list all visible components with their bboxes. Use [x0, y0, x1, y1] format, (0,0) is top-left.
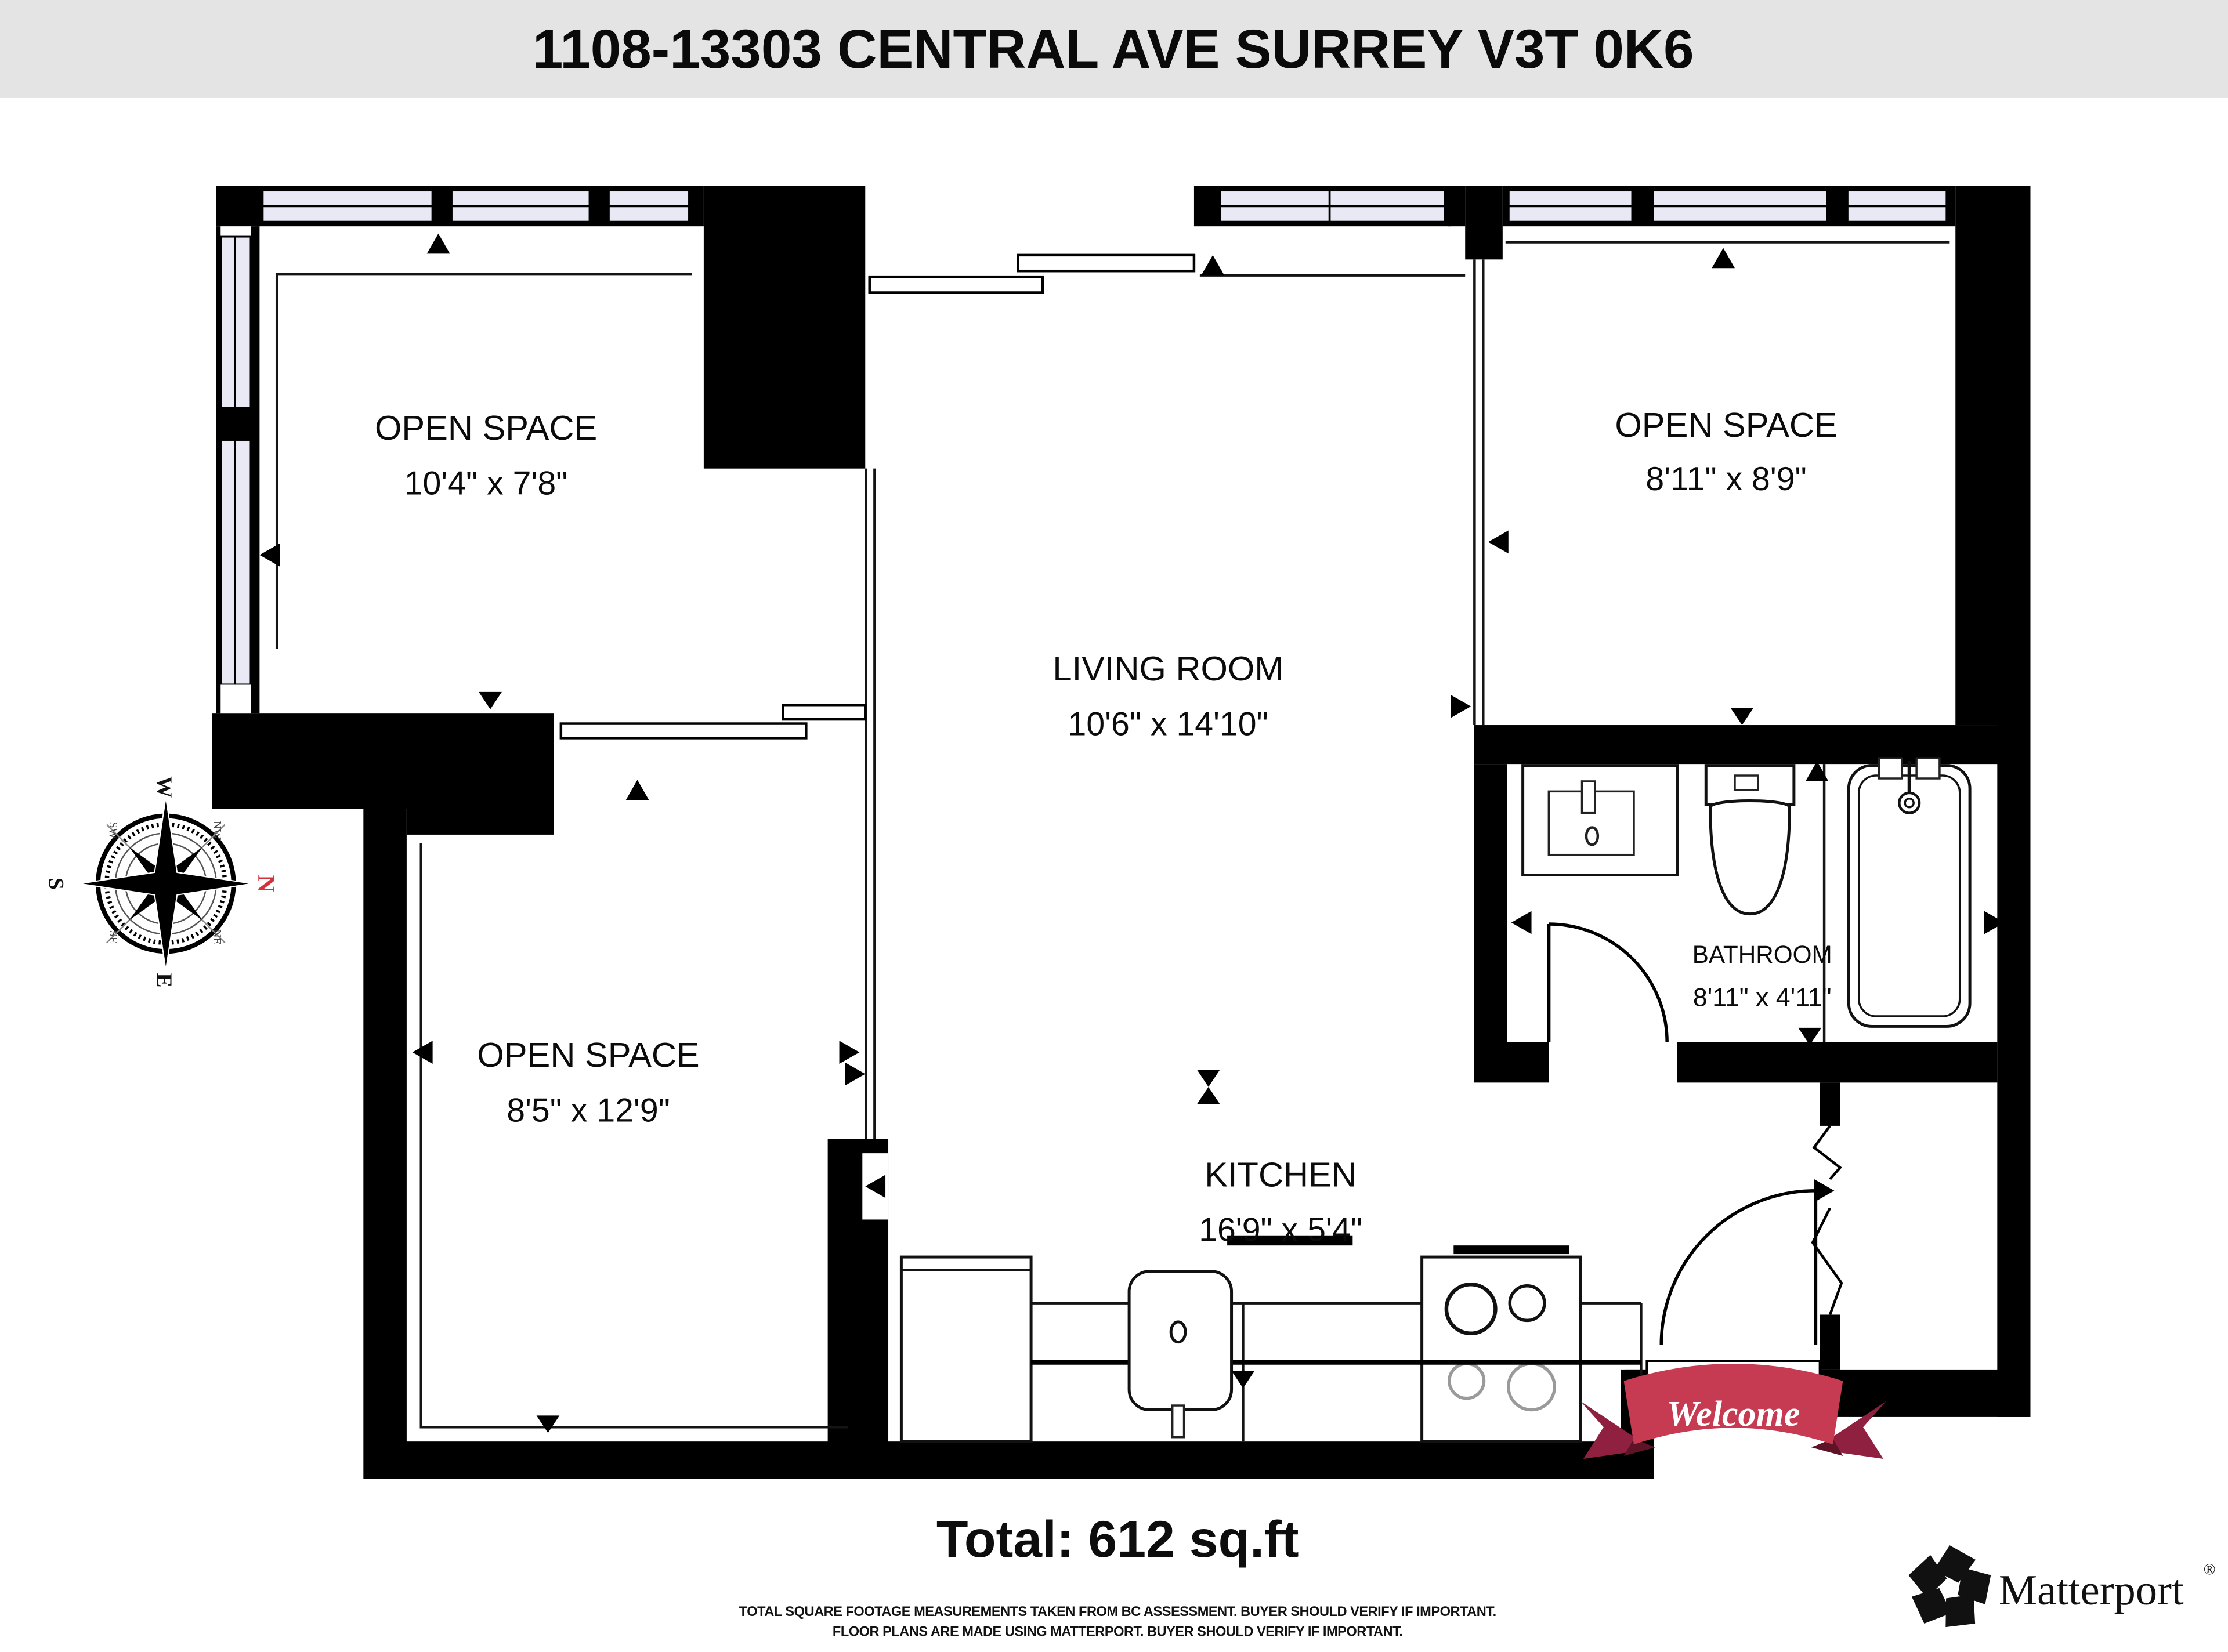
bathtub — [1849, 758, 1970, 1026]
kitchen-sink — [1129, 1271, 1231, 1437]
matterport-wordmark: Matterport — [1999, 1567, 2184, 1614]
bathroom-door — [1549, 924, 1667, 1042]
compass-south-label: S — [44, 878, 68, 890]
wall-break-symbol — [1814, 1126, 1840, 1179]
bathroom-vanity-sink — [1523, 766, 1677, 875]
registered-trademark-symbol: ® — [2204, 1560, 2216, 1578]
disclaimer-line-2: FLOOR PLANS ARE MADE USING MATTERPORT. B… — [833, 1625, 1403, 1640]
room-label-open-space-tl: OPEN SPACE — [375, 408, 597, 447]
toilet — [1706, 766, 1794, 914]
room-dims-living-room: 10'6" x 14'10" — [1068, 705, 1268, 742]
compass-west-label: W — [152, 776, 176, 798]
room-dims-open-space-tl: 10'4" x 7'8" — [404, 465, 568, 502]
compass-sw-label: SW — [107, 822, 120, 839]
room-dims-bathroom: 8'11" x 4'11" — [1693, 984, 1832, 1012]
compass-se-label: SE — [107, 930, 120, 944]
compass-ne-label: NE — [211, 929, 223, 944]
total-area-label: Total: 612 sq.ft — [936, 1510, 1299, 1568]
room-dims-kitchen: 16'9" x 5'4" — [1199, 1212, 1362, 1249]
matterport-logo-icon: Matterport ® — [1903, 1545, 2215, 1639]
room-label-open-space-tr: OPEN SPACE — [1615, 405, 1837, 444]
compass-north-label: N — [252, 875, 280, 893]
page-title: 1108-13303 CENTRAL AVE SURREY V3T 0K6 — [533, 19, 1694, 80]
welcome-banner-text: Welcome — [1666, 1394, 1800, 1434]
stove — [1422, 1245, 1580, 1441]
room-dims-open-space-bl: 8'5" x 12'9" — [507, 1092, 670, 1129]
room-label-bathroom: BATHROOM — [1692, 941, 1832, 968]
disclaimer-line-1: TOTAL SQUARE FOOTAGE MEASUREMENTS TAKEN … — [739, 1604, 1496, 1620]
room-label-living-room: LIVING ROOM — [1052, 649, 1283, 688]
room-label-open-space-bl: OPEN SPACE — [477, 1035, 699, 1074]
kitchen-fixtures — [901, 1236, 1641, 1441]
compass-nw-label: NW — [211, 821, 223, 840]
room-label-kitchen: KITCHEN — [1205, 1155, 1357, 1194]
floor-plan-canvas: 1108-13303 CENTRAL AVE SURREY V3T 0K6 — [0, 0, 2228, 1652]
compass-east-label: E — [152, 973, 176, 987]
room-dims-open-space-tr: 8'11" x 8'9" — [1645, 461, 1806, 498]
floor-plan-page: 1108-13303 CENTRAL AVE SURREY V3T 0K6 — [0, 0, 2228, 1652]
refrigerator — [901, 1257, 1031, 1441]
